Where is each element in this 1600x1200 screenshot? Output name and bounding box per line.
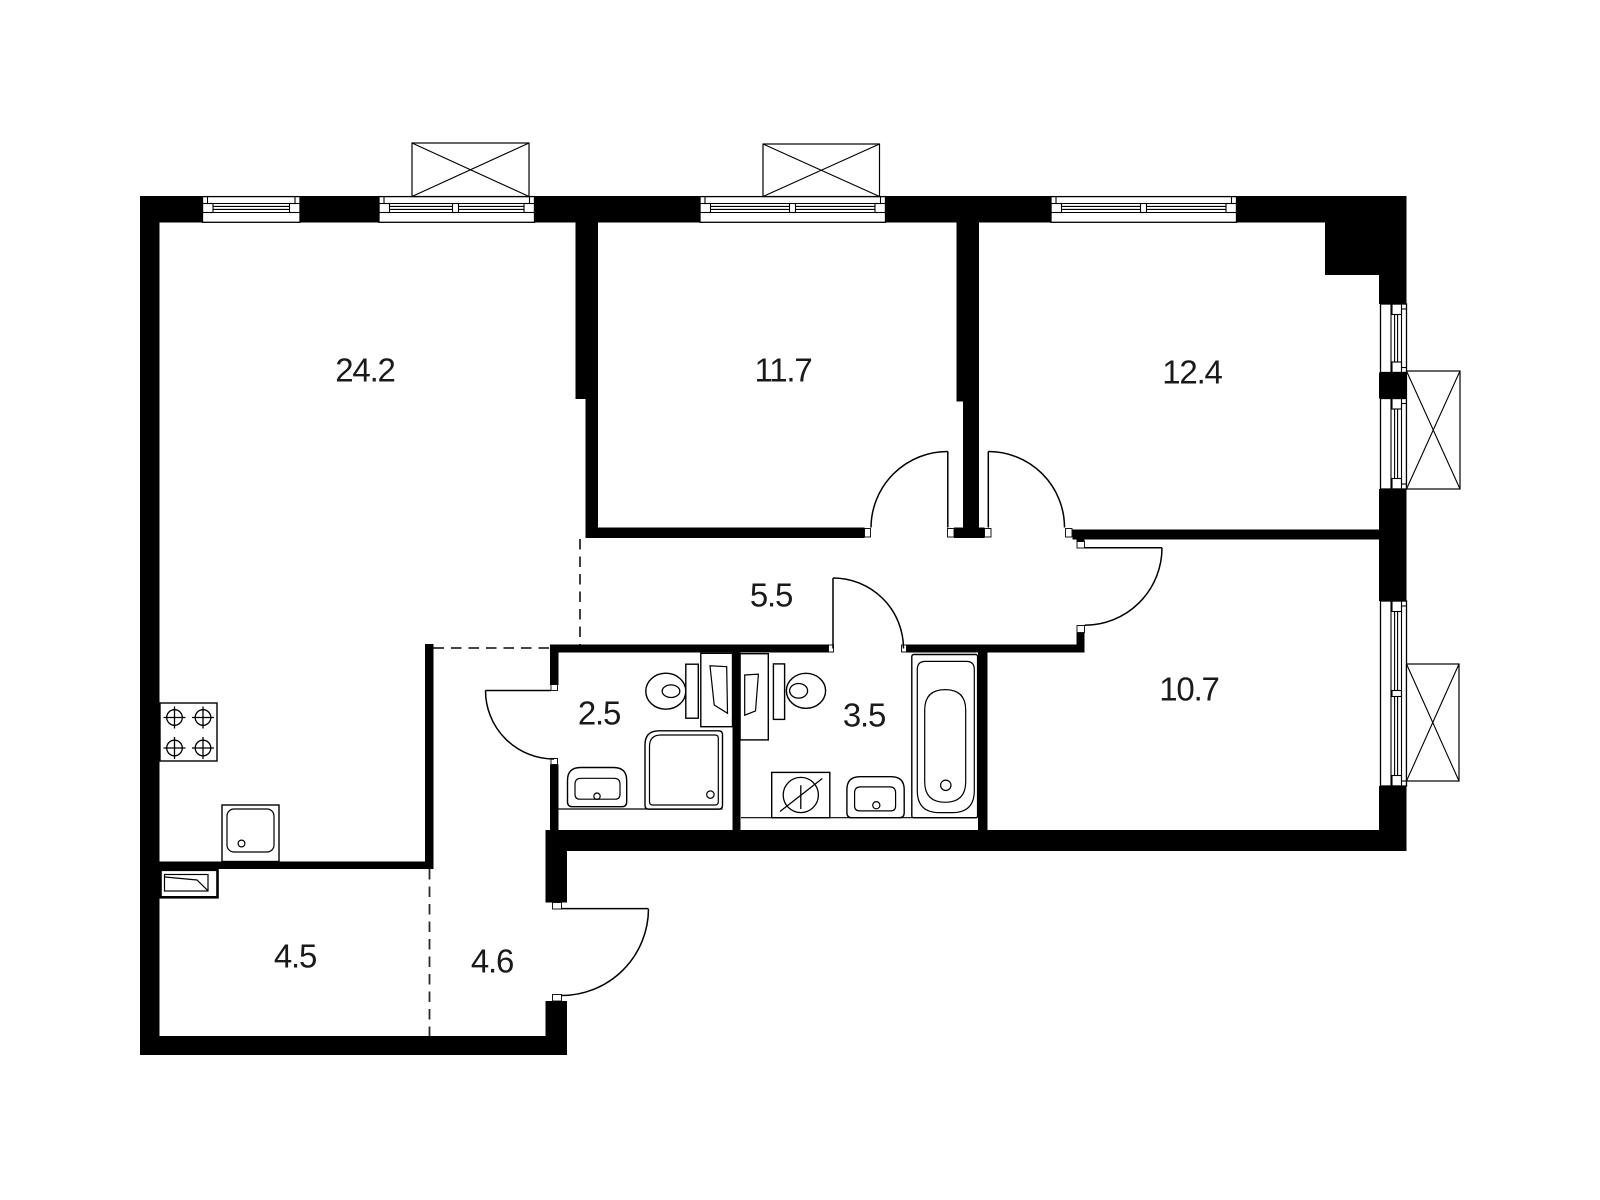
svg-text:24.2: 24.2: [335, 352, 394, 389]
svg-text:3.5: 3.5: [843, 697, 885, 734]
svg-text:11.7: 11.7: [755, 352, 812, 389]
svg-text:2.5: 2.5: [578, 695, 620, 732]
svg-text:5.5: 5.5: [750, 577, 792, 614]
svg-text:4.6: 4.6: [471, 943, 513, 980]
svg-text:12.4: 12.4: [1162, 354, 1222, 391]
svg-text:10.7: 10.7: [1159, 671, 1218, 708]
svg-text:4.5: 4.5: [274, 938, 316, 975]
